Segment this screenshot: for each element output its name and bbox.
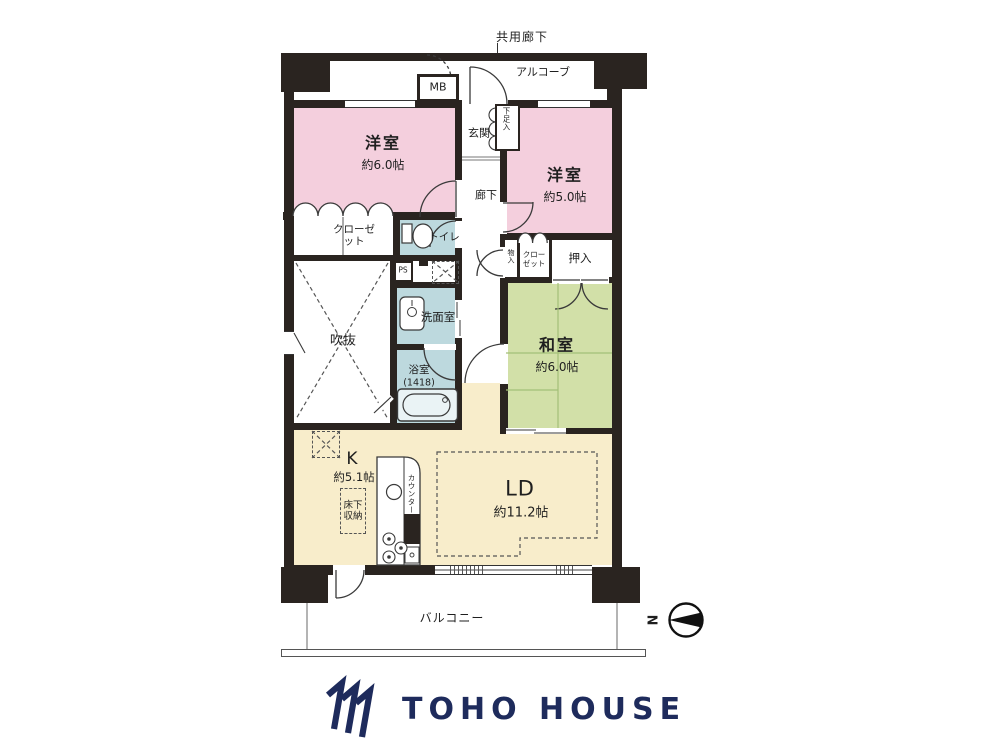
shoe-cabinet-label: 下足入 bbox=[501, 107, 512, 131]
kitchen-hatch-box bbox=[312, 431, 340, 458]
western-room-2-label: 洋室 bbox=[547, 167, 583, 186]
washroom-label: 洗面室 bbox=[421, 311, 456, 325]
compass-north-label: N bbox=[646, 615, 661, 626]
counter-label: カウンター bbox=[406, 474, 417, 514]
closet-left-label: クローゼット bbox=[333, 224, 375, 249]
floor-plan: 共用廊下 アルコーブ MB 玄関 下足入 廊下 洋室 約6.0帖 洋室 約5.0… bbox=[0, 0, 1000, 750]
toilet-label: トイレ bbox=[428, 231, 460, 243]
closet-right-label: クローゼット bbox=[522, 251, 547, 269]
pipe-space-label: PS bbox=[398, 267, 407, 276]
leader-line bbox=[497, 43, 498, 53]
bathroom-size-label: (1418) bbox=[403, 377, 435, 388]
western-room-2-area: 約5.0帖 bbox=[543, 190, 586, 204]
japanese-room-label: 和室 bbox=[539, 337, 575, 356]
logo-text: TOHO HOUSE bbox=[402, 692, 686, 727]
alcove-label: アルコーブ bbox=[516, 67, 570, 80]
balcony-railing bbox=[281, 649, 646, 657]
kitchen-label: K bbox=[346, 449, 357, 469]
japanese-room-area: 約6.0帖 bbox=[535, 360, 578, 374]
washer-space-box bbox=[432, 261, 459, 284]
common-corridor-label: 共用廊下 bbox=[496, 30, 548, 44]
underfloor-storage-label: 床下収納 bbox=[342, 500, 364, 522]
meter-box-label: MB bbox=[429, 82, 446, 95]
living-dining-label: LD bbox=[505, 477, 535, 502]
toho-house-logo-icon bbox=[328, 683, 370, 737]
entrance-label: 玄関 bbox=[468, 128, 490, 141]
balcony-label: バルコニー bbox=[420, 611, 485, 625]
oshiire-label: 押入 bbox=[569, 252, 592, 266]
hallway-label: 廊下 bbox=[475, 190, 497, 203]
western-room-1-label: 洋室 bbox=[365, 135, 401, 154]
living-dining-area: 約11.2帖 bbox=[494, 505, 549, 520]
compass-icon bbox=[669, 604, 703, 637]
bathroom-label: 浴室 bbox=[409, 364, 430, 376]
kitchen-area: 約5.1帖 bbox=[333, 471, 374, 485]
void-label: 吹抜 bbox=[330, 333, 356, 348]
bathtub-icon bbox=[398, 389, 458, 421]
western-room-1-area: 約6.0帖 bbox=[361, 158, 404, 172]
small-storage-label: 物入 bbox=[506, 249, 516, 264]
